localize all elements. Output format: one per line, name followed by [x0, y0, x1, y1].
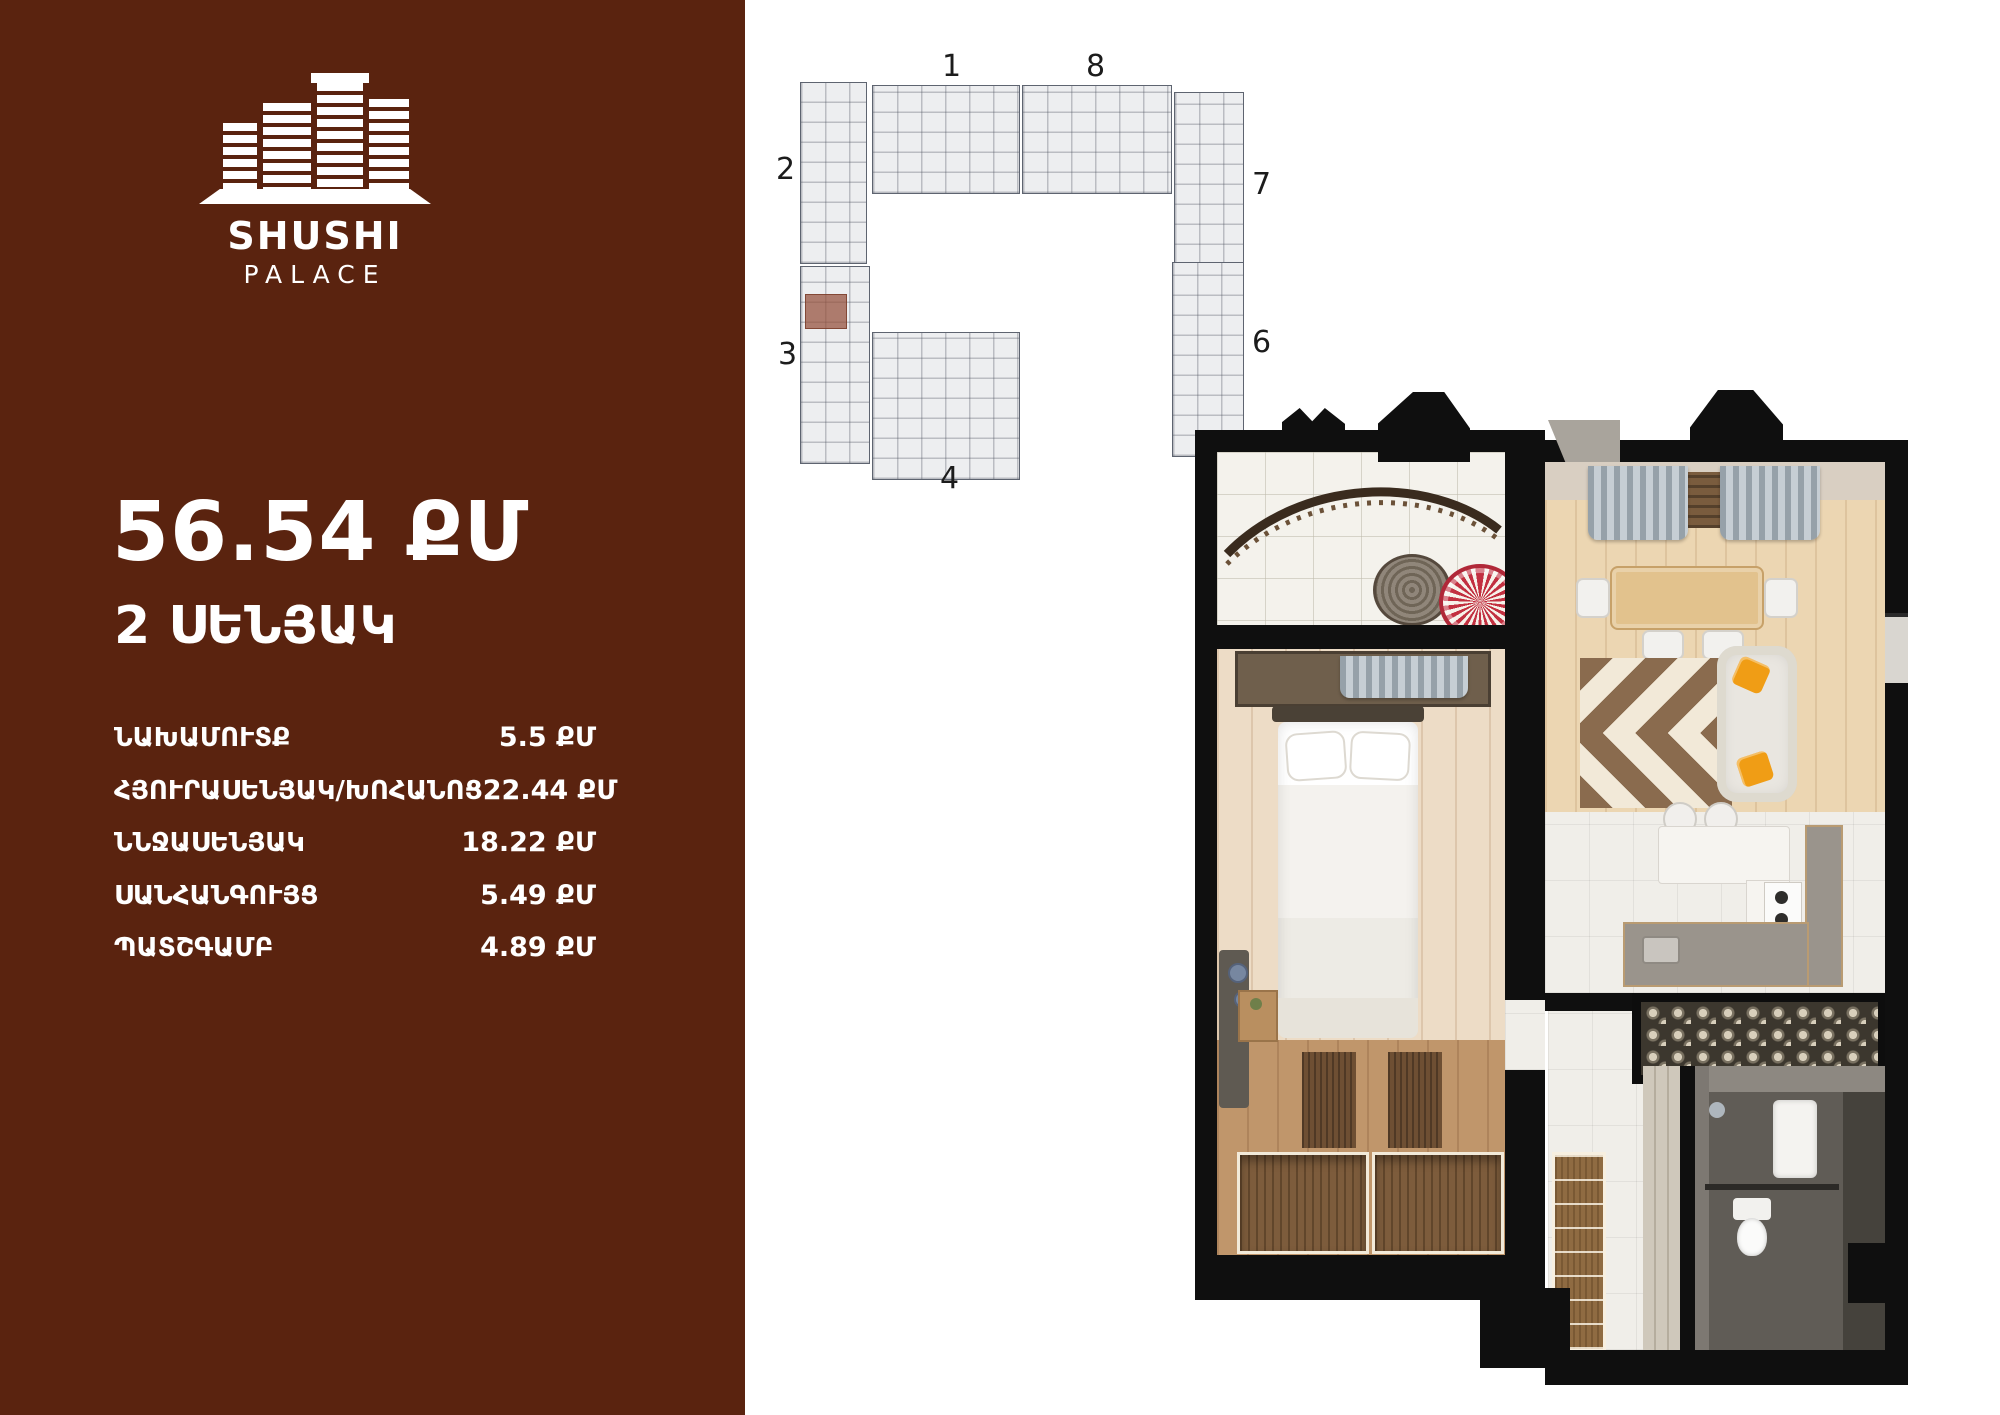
area-row: ՊԱՏՇԳԱՄԲ 4.89 ՔՄ [114, 932, 596, 985]
site-block-1 [872, 85, 1020, 194]
room-label: ՀՅՈՒՐԱՍԵՆՅԱԿ/ԽՈՀԱՆՈՑ [114, 776, 483, 806]
wall-plate-decor [1228, 963, 1248, 983]
wall-kitchen-hall-stub [1545, 993, 1632, 1011]
site-block-7 [1174, 92, 1244, 266]
wall-bottom-right-column [1545, 1350, 1908, 1385]
roof-notch [1282, 408, 1345, 452]
balcony [1217, 452, 1505, 625]
kitchen-island [1658, 826, 1790, 884]
wall-right-upper [1885, 440, 1908, 613]
dining-chair [1764, 578, 1798, 618]
wardrobe-rail [1388, 1052, 1442, 1148]
building-icon-tower-4 [369, 99, 409, 189]
toilet-tank [1733, 1198, 1771, 1220]
hall-wardrobe [1643, 1066, 1680, 1350]
living-curtain-right [1720, 466, 1820, 540]
kitchen-sink [1642, 936, 1680, 964]
dining-table [1610, 566, 1764, 630]
wardrobe-rail [1302, 1052, 1356, 1148]
sidebar: SHUSHI PALACE 56.54 ՔՄ 2 ՍԵՆՅԱԿ ՆԱԽԱՄՈՒՏ… [0, 0, 745, 1415]
decor-basket [1373, 554, 1451, 626]
area-table: ՆԱԽԱՄՈՒՏՔ 5.5 ՔՄ ՀՅՈՒՐԱՍԵՆՅԱԿ/ԽՈՀԱՆՈՑ 22… [114, 722, 596, 985]
rug-pattern [1580, 733, 1732, 808]
room-area: 5.49 ՔՄ [480, 880, 596, 911]
living-window-gap [1885, 613, 1908, 691]
wall-left [1195, 430, 1217, 1300]
wall-step-block [1480, 1288, 1570, 1368]
brochure-page: SHUSHI PALACE 56.54 ՔՄ 2 ՍԵՆՅԱԿ ՆԱԽԱՄՈՒՏ… [0, 0, 2000, 1415]
wardrobe-drawer-left [1237, 1152, 1369, 1254]
room-label: ՆԱԽԱՄՈՒՏՔ [114, 723, 290, 753]
plan-label-3: 3 [778, 340, 797, 370]
site-block-8 [1022, 85, 1172, 194]
plant-decor [1250, 998, 1262, 1010]
area-row: ՀՅՈՒՐԱՍԵՆՅԱԿ/ԽՈՀԱՆՈՑ 22.44 ՔՄ [114, 775, 596, 828]
area-row: ՆՆՋԱՍԵՆՅԱԿ 18.22 ՔՄ [114, 827, 596, 880]
toilet [1737, 1218, 1767, 1256]
building-icon-tower-3 [317, 83, 363, 189]
plan-label-4: 4 [940, 464, 959, 494]
roof-pentagon-left [1378, 392, 1470, 462]
building-icon [195, 52, 435, 204]
burner [1775, 891, 1788, 904]
chevron-rug [1580, 658, 1732, 808]
bedroom-door-opening [1505, 1000, 1545, 1070]
plan-label-2: 2 [776, 155, 795, 185]
wall-middle-upper [1505, 430, 1545, 1000]
rug-pattern [1580, 658, 1732, 733]
brand-logo: SHUSHI PALACE [185, 52, 445, 289]
room-label: ՆՆՋԱՍԵՆՅԱԿ [114, 828, 305, 858]
site-block-2 [800, 82, 867, 264]
bed-headboard [1272, 706, 1424, 722]
building-icon-tower-2 [263, 103, 311, 189]
unit-highlight [805, 294, 847, 329]
building-icon-tower-1 [223, 123, 257, 189]
site-block-4 [872, 332, 1020, 480]
building-icon-base [199, 189, 431, 204]
room-label: ՊԱՏՇԳԱՄԲ [114, 933, 273, 963]
plan-label-6: 6 [1252, 328, 1271, 358]
bed-pillow [1349, 730, 1411, 781]
room-area: 18.22 ՔՄ [461, 827, 596, 858]
wall-balcony-bedroom [1195, 625, 1545, 649]
rooms-count: 2 ՍԵՆՅԱԿ [114, 600, 397, 652]
wardrobe-drawer-right [1372, 1152, 1504, 1254]
apartment-render [1190, 388, 1910, 1393]
plan-label-7: 7 [1252, 170, 1271, 200]
bed-foot-blanket [1278, 998, 1418, 1038]
wall-corner-block [1848, 1243, 1908, 1303]
total-area: 56.54 ՔՄ [112, 492, 529, 574]
roof-pentagon-right [1690, 390, 1783, 462]
area-row: ՍԱՆՀԱՆԳՈՒՅՑ 5.49 ՔՄ [114, 880, 596, 933]
building-icon-roof [311, 73, 369, 83]
bed-pillow [1284, 730, 1347, 782]
kitchen-counter-right [1805, 825, 1843, 987]
bedroom-curtain [1340, 656, 1468, 698]
plan-label-8: 8 [1086, 52, 1105, 82]
bathroom-counter [1843, 1092, 1885, 1350]
area-row: ՆԱԽԱՄՈՒՏՔ 5.5 ՔՄ [114, 722, 596, 775]
dining-chair [1642, 630, 1684, 660]
balcony-railing [1217, 452, 1505, 582]
living-curtain-left [1588, 466, 1688, 540]
room-label: ՍԱՆՀԱՆԳՈՒՅՑ [114, 881, 318, 911]
dining-chair [1576, 578, 1610, 618]
room-area: 5.5 ՔՄ [499, 722, 596, 753]
bathroom [1695, 1066, 1885, 1350]
room-area: 22.44 ՔՄ [483, 775, 618, 806]
bathroom-sink [1773, 1100, 1817, 1178]
wall-bathroom-divider [1680, 1066, 1695, 1350]
brand-name: SHUSHI [185, 214, 445, 258]
brand-subname: PALACE [185, 260, 445, 289]
shower-head [1709, 1102, 1725, 1118]
bathroom-shelf [1705, 1184, 1839, 1190]
room-area: 4.89 ՔՄ [480, 932, 596, 963]
plan-label-1: 1 [942, 52, 961, 82]
